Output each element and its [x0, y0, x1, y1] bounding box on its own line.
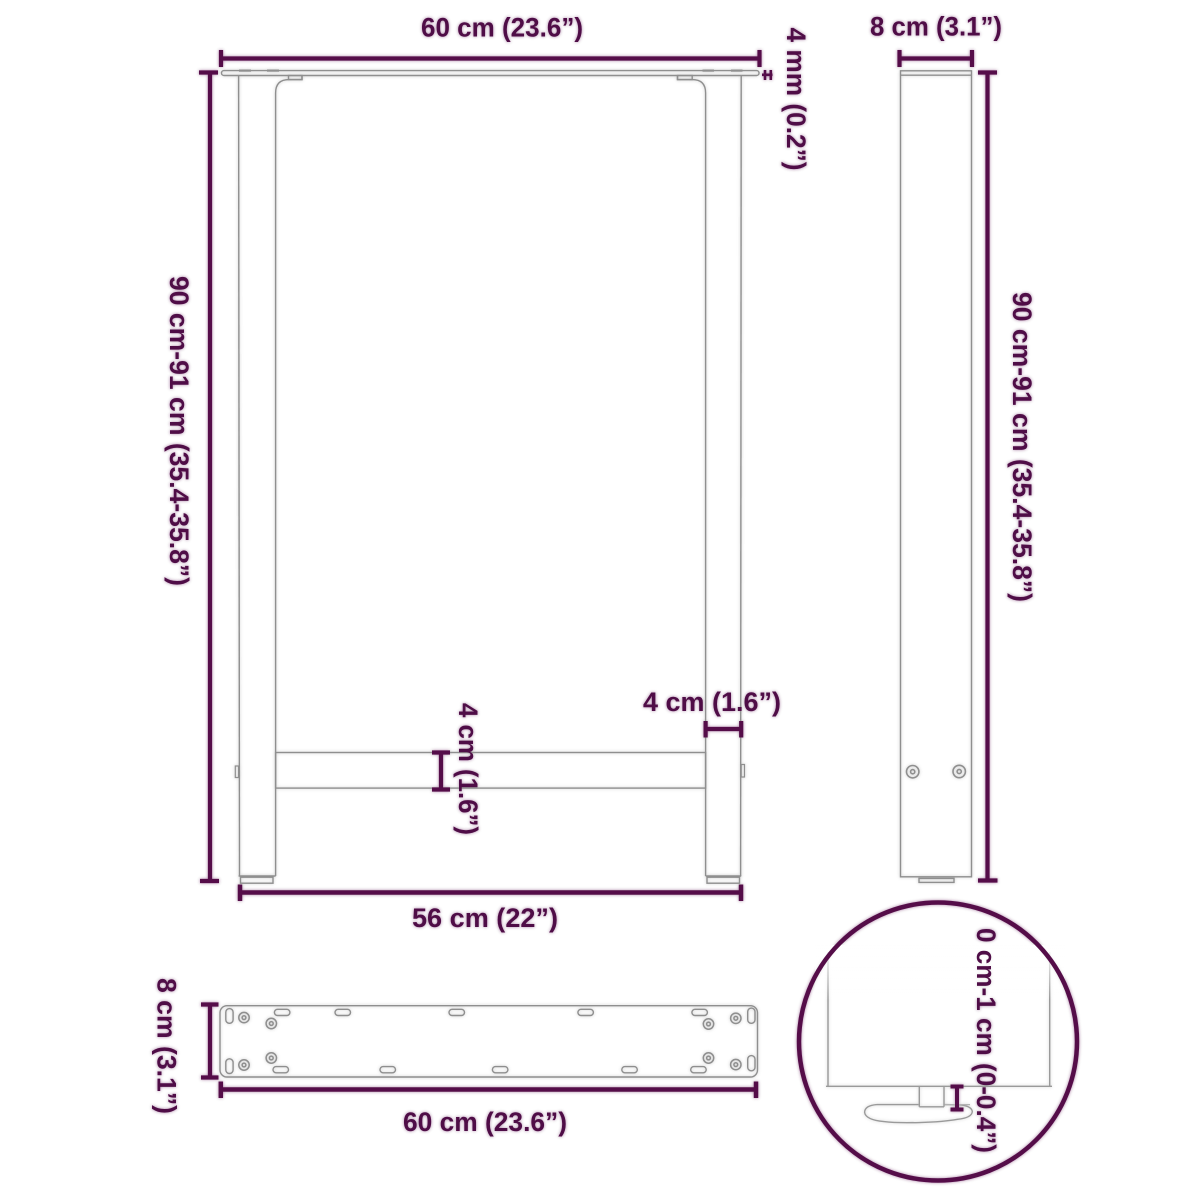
svg-text:4 cm (1.6”): 4 cm (1.6”) — [453, 703, 483, 835]
svg-text:90 cm-91 cm (35.4-35.8”): 90 cm-91 cm (35.4-35.8”) — [1007, 292, 1037, 602]
svg-text:4 mm (0.2”): 4 mm (0.2”) — [781, 28, 811, 171]
svg-text:56 cm (22”): 56 cm (22”) — [412, 903, 558, 933]
svg-text:8 cm (3.1”): 8 cm (3.1”) — [870, 12, 1002, 42]
svg-text:90 cm-91 cm (35.4-35.8”): 90 cm-91 cm (35.4-35.8”) — [164, 276, 194, 586]
svg-text:60 cm (23.6”): 60 cm (23.6”) — [403, 1107, 567, 1137]
svg-text:4 cm (1.6”): 4 cm (1.6”) — [643, 687, 781, 717]
svg-text:0 cm-1 cm (0-0.4”): 0 cm-1 cm (0-0.4”) — [971, 928, 1001, 1153]
svg-text:8 cm (3.1”): 8 cm (3.1”) — [152, 978, 182, 1114]
svg-text:60 cm (23.6”): 60 cm (23.6”) — [421, 13, 583, 43]
